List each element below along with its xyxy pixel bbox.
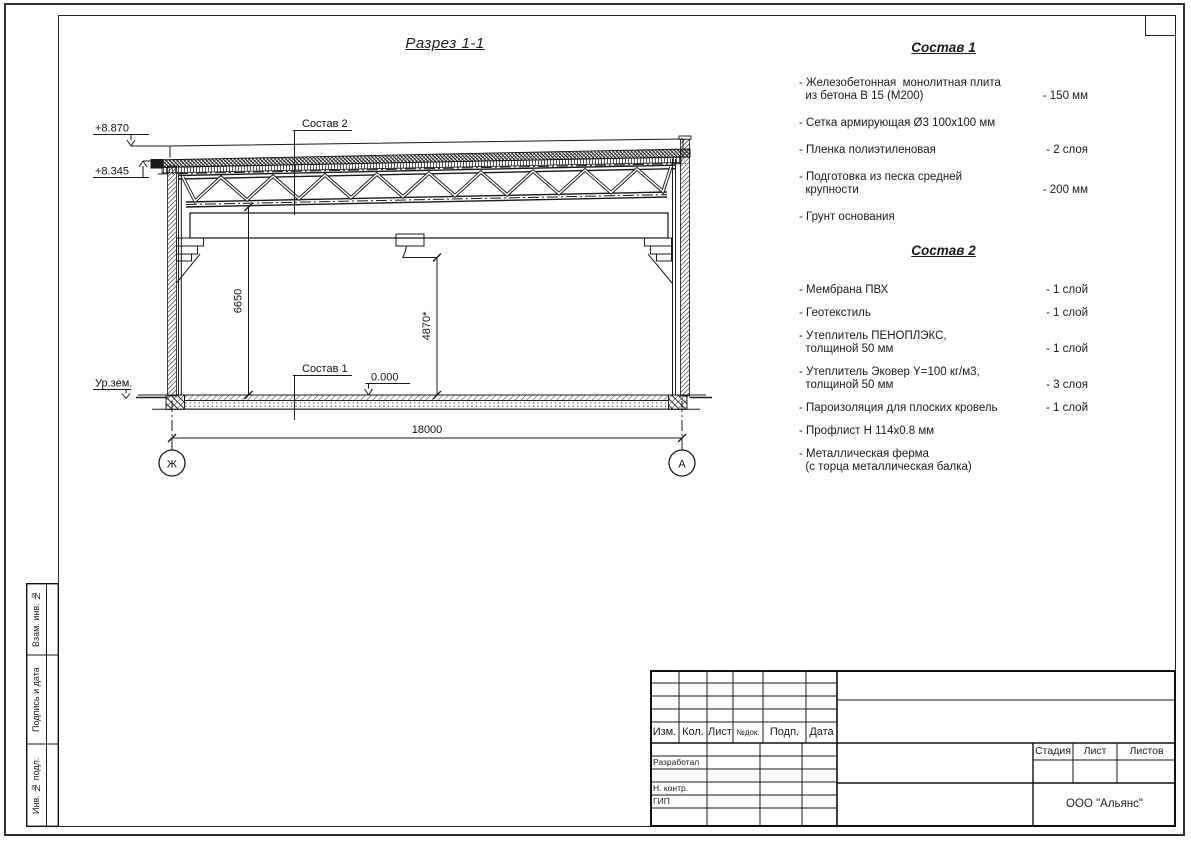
tb-col-podp: Подп.: [763, 722, 806, 743]
callout-floor-label: Состав 1: [302, 363, 348, 375]
item-value: - 1 слой: [1046, 343, 1088, 356]
dim-4870: 4870*: [403, 254, 442, 400]
strip-cell-vzam: Взам. инв. №: [26, 583, 46, 655]
list-item: - Утеплитель Эковер Y=100 кг/м3, толщино…: [799, 366, 1088, 392]
list-item: - Грунт основания: [799, 211, 1088, 224]
wall-right: [673, 136, 692, 396]
tb-role-developer: Разработал: [650, 756, 707, 769]
title-block: Изм. Кол. Лист №док. Подп. Дата Разработ…: [650, 670, 1176, 827]
zero-level-mark: 0.000: [365, 372, 411, 396]
item-name: - Пароизоляция для плоских кровель: [799, 402, 998, 415]
dim-6650-value: 6650: [233, 289, 245, 313]
ground-level-mark: Ур.зем.: [93, 378, 132, 399]
axis-right-bubble: А: [669, 450, 695, 476]
axis-right-label: А: [678, 459, 686, 471]
item-name: - Железобетонная монолитная плита из бет…: [799, 77, 1001, 103]
list-item: - Сетка армирующая Ø3 100х100 мм: [799, 117, 1088, 130]
composition-1-heading: Состав 1: [799, 40, 1088, 55]
tb-col-ndok: №док.: [733, 722, 763, 743]
callout-floor: Состав 1: [293, 363, 352, 420]
list-item: - Утеплитель ПЕНОПЛЭКС, толщиной 50 мм -…: [799, 330, 1088, 356]
tb-col-list: Лист: [707, 722, 733, 743]
tb-sheet-header: Лист: [1073, 743, 1117, 760]
strip-cell-inv: Инв. № подл.: [26, 744, 46, 827]
foundation-right: [669, 395, 688, 409]
list-item: - Пароизоляция для плоских кровель - 1 с…: [799, 402, 1088, 415]
item-value: - 1 слой: [1046, 284, 1088, 297]
drawing-sheet: Разрез 1-1: [0, 0, 1191, 842]
beam: [190, 213, 668, 238]
tb-company: ООО "Альянс": [1033, 783, 1176, 827]
zero-level-value: 0.000: [371, 372, 399, 384]
item-value: - 2 слоя: [1046, 144, 1088, 157]
callout-roof-label: Состав 2: [302, 118, 348, 130]
tb-role-gip: ГИП: [650, 795, 707, 808]
wall-left: [168, 166, 182, 396]
strip-cell-podpis: Подпись и дата: [26, 655, 46, 744]
tb-col-data: Дата: [806, 722, 837, 743]
elevation-parapet: +8.870: [93, 123, 171, 147]
item-name: - Пленка полиэтиленовая: [799, 144, 936, 157]
tb-stage-header: Стадия: [1033, 743, 1073, 760]
item-name: - Металлическая ферма (с торца металличе…: [799, 448, 972, 474]
dim-4870-value: 4870*: [421, 311, 433, 340]
list-item: - Геотекстиль - 1 слой: [799, 307, 1088, 320]
bracket-left: [177, 238, 204, 283]
item-value: - 1 слой: [1046, 402, 1088, 415]
item-name: - Утеплитель ПЕНОПЛЭКС, толщиной 50 мм: [799, 330, 947, 356]
list-item: - Мембрана ПВХ - 1 слой: [799, 284, 1088, 297]
item-name: - Профлист Н 114х0.8 мм: [799, 425, 934, 438]
item-name: - Мембрана ПВХ: [799, 284, 888, 297]
elevation-parapet-value: +8.870: [95, 123, 129, 135]
composition-2-heading: Состав 2: [799, 243, 1088, 258]
list-item: - Подготовка из песка средней крупности …: [799, 171, 1088, 197]
item-name: - Грунт основания: [799, 211, 895, 224]
margin-strip: Взам. инв. № Подпись и дата Инв. № подл.: [26, 583, 59, 827]
item-name: - Сетка армирующая Ø3 100х100 мм: [799, 117, 995, 130]
item-value: - 3 слоя: [1046, 379, 1088, 392]
list-item: - Железобетонная монолитная плита из бет…: [799, 77, 1088, 103]
floor-layers: [136, 395, 712, 409]
item-value: - 200 мм: [1043, 184, 1088, 197]
elevation-eaves: +8.345: [93, 161, 152, 178]
item-name: - Утеплитель Эковер Y=100 кг/м3, толщино…: [799, 366, 980, 392]
dim-span-value: 18000: [412, 424, 443, 436]
axis-left-label: Ж: [167, 459, 177, 471]
ground-level-label: Ур.зем.: [95, 378, 132, 390]
list-item: - Пленка полиэтиленовая - 2 слоя: [799, 144, 1088, 157]
foundation-left: [166, 395, 185, 409]
item-value: - 1 слой: [1046, 307, 1088, 320]
composition-1-panel: Состав 1 - Железобетонная монолитная пли…: [799, 40, 1088, 238]
item-name: - Геотекстиль: [799, 307, 871, 320]
elevation-eaves-value: +8.345: [95, 166, 129, 178]
tb-col-izm: Изм.: [650, 722, 679, 743]
roof-edge-cap: [151, 159, 164, 169]
item-name: - Подготовка из песка средней крупности: [799, 171, 962, 197]
list-item: - Профлист Н 114х0.8 мм: [799, 425, 1088, 438]
item-value: - 150 мм: [1043, 90, 1088, 103]
composition-2-panel: Состав 2 - Мембрана ПВХ - 1 слой - Геоте…: [799, 243, 1088, 484]
axis-left-bubble: Ж: [159, 450, 185, 476]
tb-col-kol: Кол.: [679, 722, 707, 743]
tb-role-ncontrol: Н. контр.: [650, 782, 707, 795]
list-item: - Металлическая ферма (с торца металличе…: [799, 448, 1088, 474]
tb-sheets-header: Листов: [1117, 743, 1176, 760]
bracket-right: [645, 238, 673, 283]
